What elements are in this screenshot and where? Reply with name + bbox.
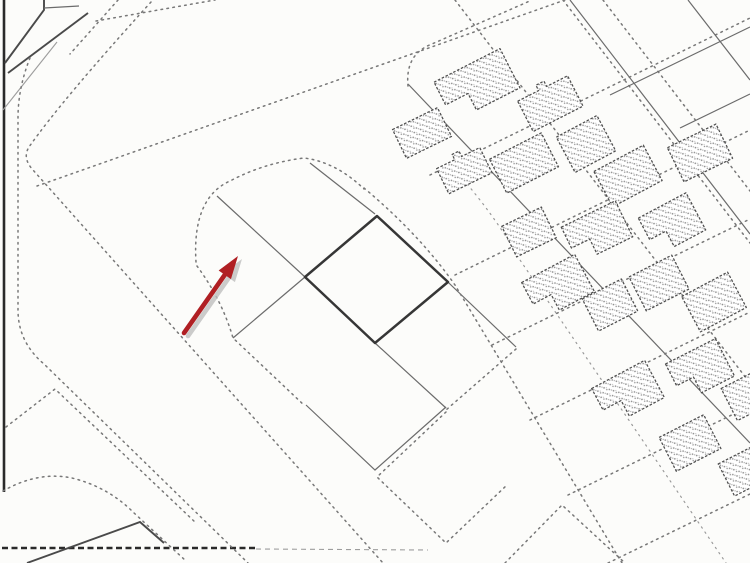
cadastral-map-scan xyxy=(0,0,750,563)
cadastral-map xyxy=(0,0,750,563)
